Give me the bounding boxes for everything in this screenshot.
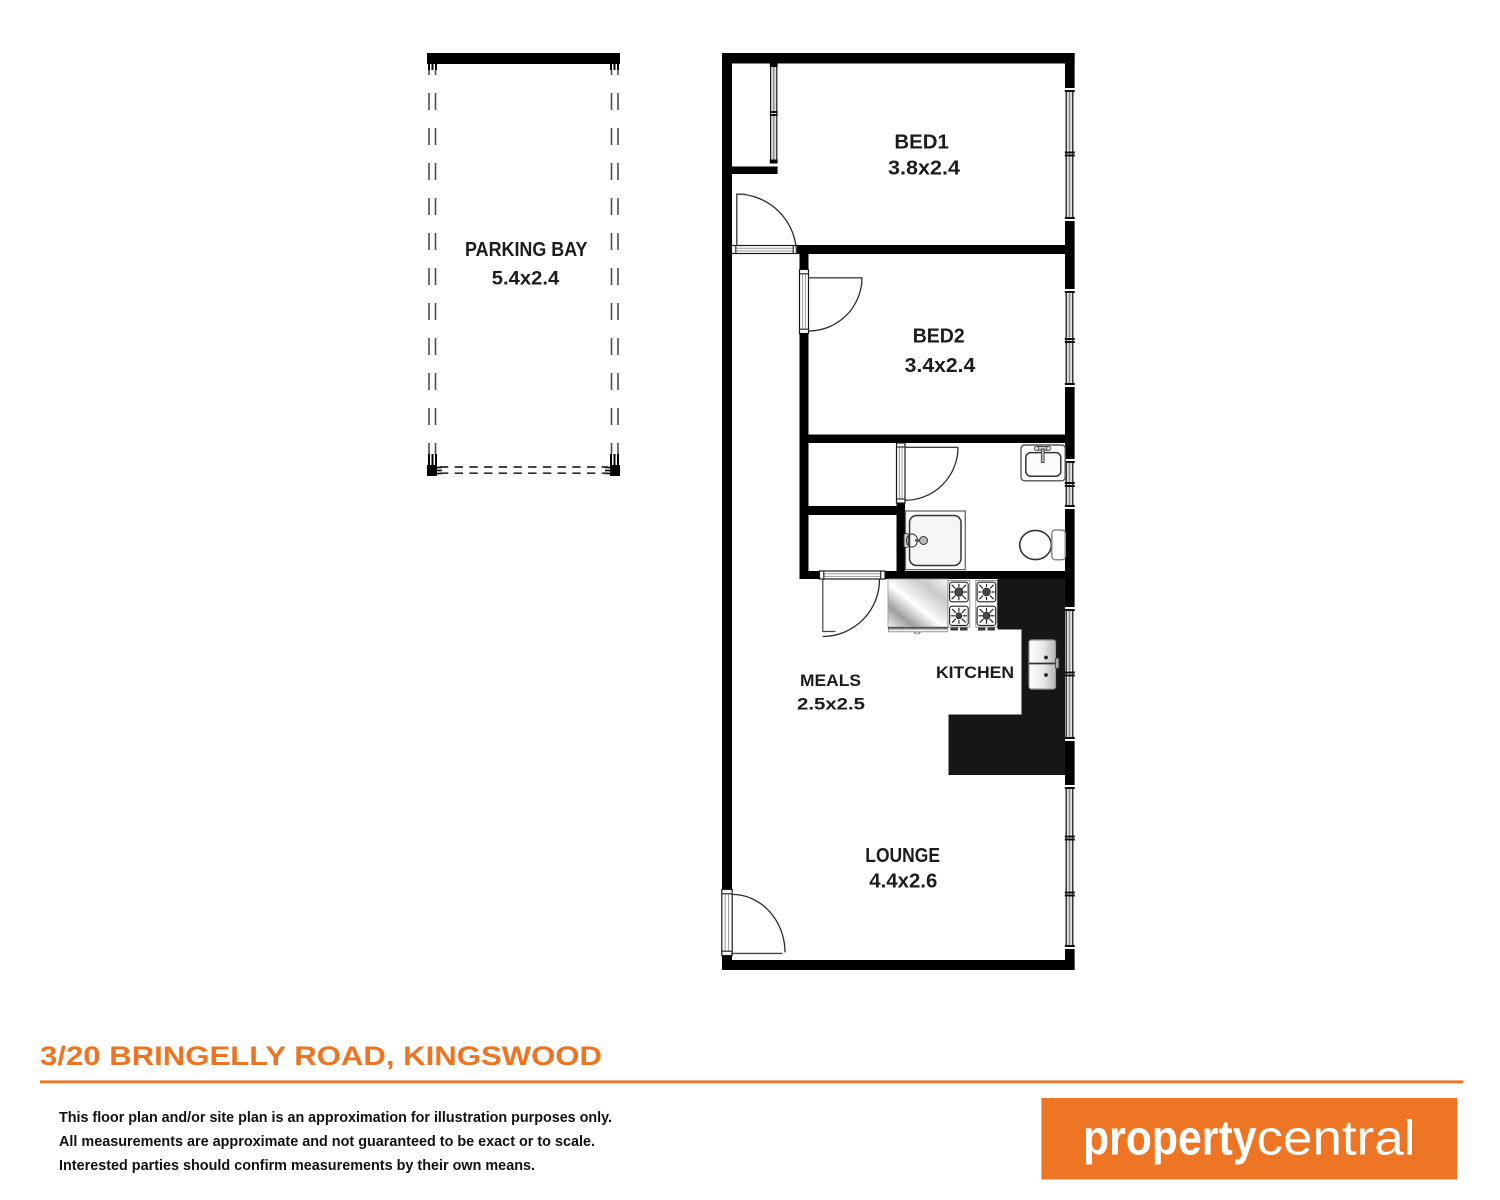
svg-text:3.8x2.4: 3.8x2.4 <box>888 157 961 179</box>
svg-text:KITCHEN: KITCHEN <box>936 664 1014 682</box>
svg-text:3/20 BRINGELLY ROAD, KINGSWOOD: 3/20 BRINGELLY ROAD, KINGSWOOD <box>40 1041 602 1071</box>
svg-text:propertycentral: propertycentral <box>1083 1112 1416 1166</box>
svg-text:4.4x2.6: 4.4x2.6 <box>869 870 937 892</box>
svg-text:PARKING BAY: PARKING BAY <box>465 239 588 261</box>
svg-text:5.4x2.4: 5.4x2.4 <box>492 268 559 290</box>
svg-text:BED1: BED1 <box>894 132 948 154</box>
svg-text:LOUNGE: LOUNGE <box>865 845 940 867</box>
svg-text:All measurements are approxima: All measurements are approximate and not… <box>59 1134 595 1150</box>
svg-text:MEALS: MEALS <box>800 672 861 690</box>
svg-text:Interested parties should conf: Interested parties should confirm measur… <box>59 1158 535 1174</box>
svg-text:3.4x2.4: 3.4x2.4 <box>905 355 977 377</box>
svg-text:BED2: BED2 <box>913 326 965 348</box>
svg-text:2.5x2.5: 2.5x2.5 <box>797 695 865 713</box>
svg-text:This floor plan and/or site pl: This floor plan and/or site plan is an a… <box>59 1110 612 1126</box>
